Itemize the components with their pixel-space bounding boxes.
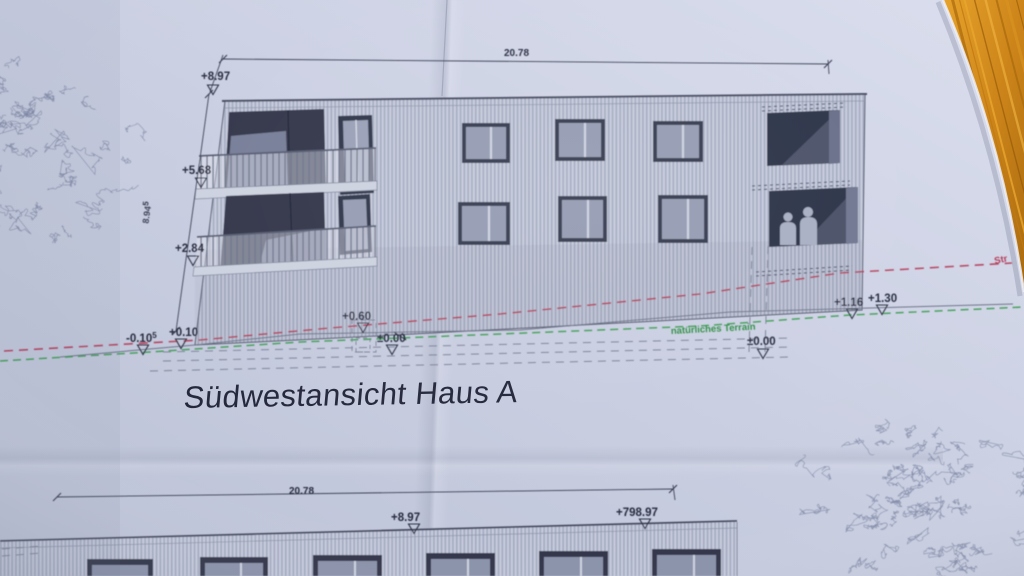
photo-of-architectural-elevation-drawing: natürliches Terrain Str 20.78 8.945 +8.9… <box>0 0 1024 576</box>
drawing-canvas: natürliches Terrain Str 20.78 8.945 +8.9… <box>0 0 1024 576</box>
left-edge-shading <box>0 0 120 576</box>
photo-vignette <box>0 0 1024 576</box>
